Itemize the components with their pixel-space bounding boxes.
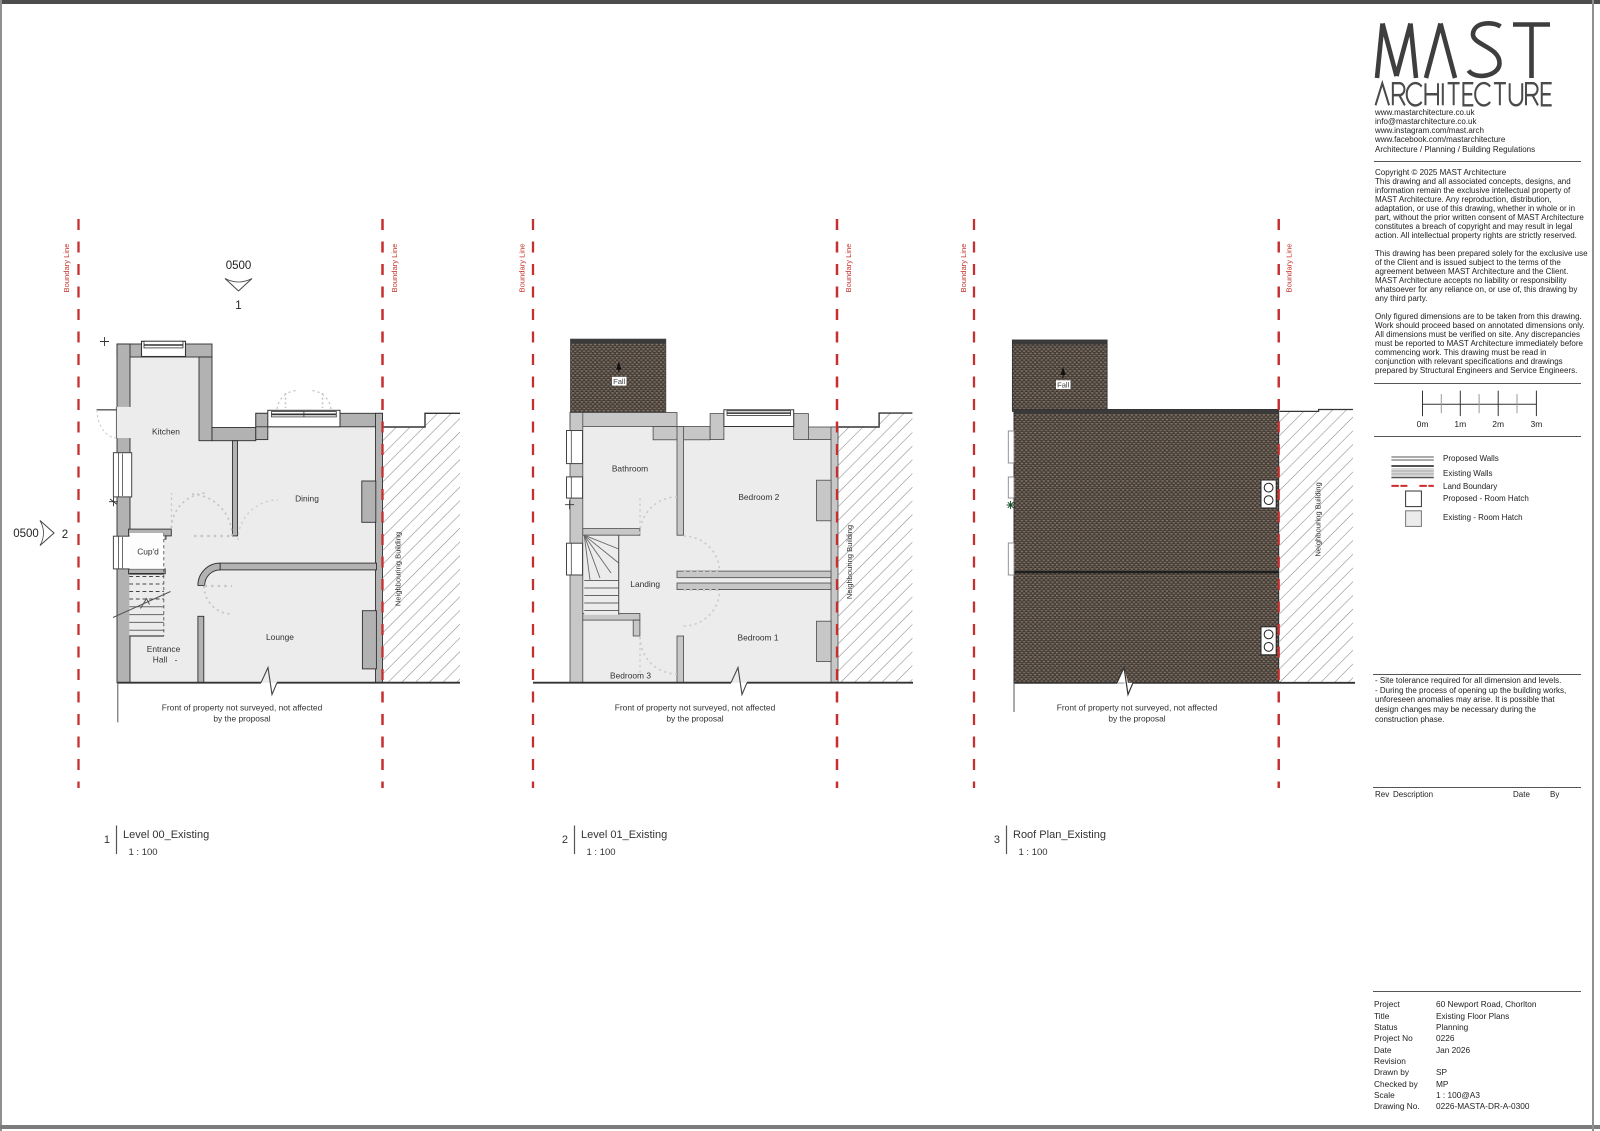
svg-text:Bathroom: Bathroom	[612, 464, 648, 474]
svg-text:Cup'd: Cup'd	[137, 547, 159, 557]
svg-text:Roof Plan_Existing: Roof Plan_Existing	[1013, 829, 1106, 841]
svg-text:1 : 100: 1 : 100	[1019, 847, 1048, 858]
svg-text:Landing: Landing	[630, 579, 660, 589]
svg-text:Fall: Fall	[1057, 381, 1070, 390]
svg-text:Front of property not surveyed: Front of property not surveyed, not affe…	[615, 703, 776, 713]
svg-text:Boundary Line: Boundary Line	[844, 244, 853, 293]
svg-text:2: 2	[562, 834, 568, 846]
svg-text:Boundary Line: Boundary Line	[959, 244, 968, 293]
svg-text:1: 1	[104, 834, 110, 846]
svg-text:Front of property not surveyed: Front of property not surveyed, not affe…	[1057, 703, 1218, 713]
svg-text:Bedroom 3: Bedroom 3	[610, 670, 651, 680]
svg-text:by the proposal: by the proposal	[1108, 713, 1165, 723]
svg-text:1 : 100: 1 : 100	[587, 847, 616, 858]
svg-text:Dining: Dining	[295, 494, 319, 504]
svg-text:Front of property not surveyed: Front of property not surveyed, not affe…	[162, 703, 323, 713]
svg-text:Level 01_Existing: Level 01_Existing	[581, 829, 667, 841]
svg-text:1: 1	[235, 300, 241, 312]
svg-text:Boundary Line: Boundary Line	[518, 244, 527, 293]
svg-text:Bedroom 2: Bedroom 2	[738, 492, 779, 502]
svg-text:Fall: Fall	[613, 377, 626, 386]
svg-text:by the proposal: by the proposal	[213, 713, 270, 723]
svg-text:Entrance: Entrance	[147, 644, 181, 654]
svg-text:Boundary Line: Boundary Line	[390, 244, 399, 293]
svg-text:3: 3	[994, 834, 1000, 846]
svg-text:Neighbouring Building: Neighbouring Building	[1313, 482, 1322, 556]
svg-text:Boundary Line: Boundary Line	[1285, 244, 1294, 293]
svg-text:Bedroom 1: Bedroom 1	[738, 633, 779, 643]
svg-text:-: -	[175, 655, 178, 665]
svg-text:2: 2	[62, 529, 68, 541]
svg-text:Kitchen: Kitchen	[152, 427, 180, 437]
svg-text:Level 00_Existing: Level 00_Existing	[123, 829, 209, 841]
svg-text:Neighbouring Building: Neighbouring Building	[845, 525, 854, 599]
svg-text:Lounge: Lounge	[266, 632, 294, 642]
svg-text:0500: 0500	[226, 260, 252, 272]
svg-text:by the proposal: by the proposal	[666, 713, 723, 723]
svg-text:Hall: Hall	[153, 655, 168, 665]
svg-text:Neighbouring Building: Neighbouring Building	[394, 532, 403, 606]
svg-text:0500: 0500	[13, 528, 39, 540]
svg-text:1 : 100: 1 : 100	[129, 847, 158, 858]
svg-text:Boundary Line: Boundary Line	[62, 244, 71, 293]
